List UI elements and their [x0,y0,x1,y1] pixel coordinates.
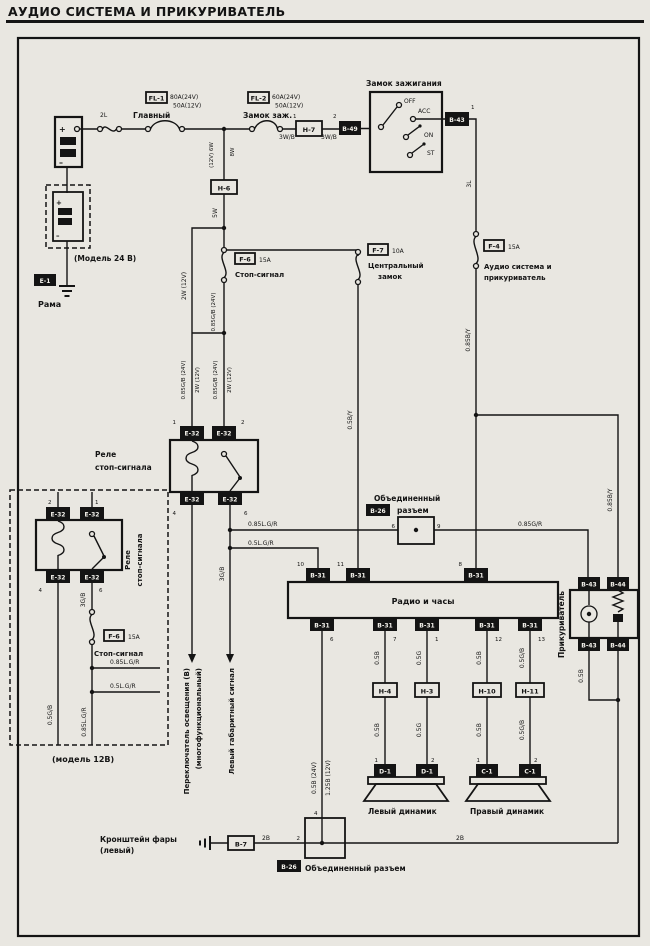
wire-05lgr: 0.5L.G/R [248,540,274,547]
fuse-f6: F-6 15A Стоп-сигнал 2W (12V) 0.85G/B (24… [181,248,284,400]
wire-085by: 0.85B/Y [465,328,472,351]
wire-3l: 3L [466,180,473,188]
svg-text:6: 6 [244,511,248,517]
f4-name-1: Аудио система и [484,263,552,271]
main-link-label: Главный [133,111,170,120]
svg-text:6: 6 [392,524,396,530]
wire-05by: 0.5B/Y [347,410,354,430]
frame-label: Рама [38,300,61,309]
svg-text:F-4: F-4 [488,243,500,251]
svg-text:0.5B: 0.5B [476,651,483,665]
wire-8w: 8W [230,147,236,156]
joint-connector-mid: Объединенный разъем B-26 6 9 [366,494,441,544]
svg-text:0.85G/B (24V): 0.85G/B (24V) [213,361,219,400]
battery-minus: – [59,158,63,167]
svg-text:1: 1 [95,500,99,506]
wire-05lgr-12v: 0.5L.G/R [110,683,136,690]
svg-text:0.5G: 0.5G [416,723,423,738]
svg-text:2B: 2B [456,835,464,842]
wire-12v6w: (12V) 6W [209,142,215,168]
svg-text:B-31: B-31 [479,623,494,630]
schematic-canvas: АУДИО СИСТЕМА И ПРИКУРИВАТЕЛЬ + [0,0,650,946]
svg-text:FL-2: FL-2 [251,95,267,103]
svg-text:11: 11 [337,562,344,568]
svg-text:H-7: H-7 [303,126,316,134]
h-connectors: H-4 H-3 H-10 H-11 [373,683,544,697]
speaker-right: 1 2 C-1 C-1 Правый динамик [466,758,550,816]
wire-3wb-1: 3W/B [279,134,295,141]
f7-name-2: замок [378,273,402,281]
svg-text:4: 4 [173,511,177,517]
svg-text:2: 2 [241,420,245,426]
svg-text:B-26: B-26 [281,864,296,871]
dest-light-switch-1: Переключатель освещения (В) [183,668,191,794]
f6-name: Стоп-сигнал [235,271,284,279]
svg-text:1: 1 [293,114,297,120]
svg-text:0.5B: 0.5B [476,723,483,737]
svg-text:0.5B: 0.5B [374,723,381,737]
model-24v-label: (Модель 24 В) [74,254,136,263]
svg-text:0.5G/B: 0.5G/B [519,648,526,668]
svg-text:B-31: B-31 [522,623,537,630]
svg-text:10A: 10A [392,248,405,255]
wire-2l-label: 2L [100,112,108,119]
svg-text:E-32: E-32 [51,512,66,519]
svg-text:15A: 15A [259,257,272,264]
svg-text:0.5G/B: 0.5G/B [519,720,526,740]
svg-text:B-49: B-49 [342,126,357,133]
radio-unit: 10 11 8 B-31 B-31 B-31 Радио и часы B-31… [288,562,558,796]
svg-text:B-44: B-44 [610,643,625,650]
wire-085gr: 0.85G/R [518,521,542,528]
svg-text:H-11: H-11 [521,688,539,696]
svg-text:0.85G/B (24V): 0.85G/B (24V) [181,361,187,400]
svg-text:B-31: B-31 [377,623,392,630]
svg-text:1: 1 [477,758,481,764]
f4-name-2: прикуриватель [484,274,546,282]
battery-plus: + [59,125,66,134]
svg-text:B-43: B-43 [449,117,464,124]
svg-text:1: 1 [471,105,475,111]
svg-text:2W (12V): 2W (12V) [195,367,201,393]
svg-text:13: 13 [538,637,545,643]
wire-3wb-2: 3W/B [321,134,337,141]
svg-text:D-1: D-1 [379,769,391,776]
svg-text:Объединенный: Объединенный [374,494,440,503]
fl1-rating-12: 50A(12V) [173,103,201,110]
ign-link-label: Замок заж. [243,111,292,120]
svg-text:B-44: B-44 [610,582,625,589]
battery-24v: + – + – (Модель 24 В) E-1 Рама [34,117,136,309]
svg-text:E-32: E-32 [85,575,100,582]
pos-acc: ACC [418,108,430,115]
wire-085gb24: 0.85G/B (24V) [211,293,217,332]
wire-2w12v: 2W (12V) [181,272,188,300]
svg-text:–: – [56,232,60,240]
wire-085lgr-12v: 0.85L.G/R [110,659,139,666]
lighter-heater-icon [613,590,623,612]
svg-text:Реле: Реле [124,550,132,570]
svg-text:H-10: H-10 [478,688,496,696]
svg-text:стоп-сигнала: стоп-сигнала [136,533,144,586]
model-12v-box [10,490,168,745]
arrow-to-light-switch [188,654,196,663]
radio-name: Радио и часы [392,597,455,606]
wire-125b12: 1.25B (12V) [325,760,332,796]
svg-text:2: 2 [534,758,538,764]
cigarette-lighter: B-43 B-44 B-43 B-44 Прикуриватель 0.5B [557,577,638,683]
svg-text:H-3: H-3 [421,688,434,696]
svg-text:1: 1 [375,758,379,764]
svg-text:FL-1: FL-1 [149,95,165,103]
svg-text:B-31: B-31 [350,573,365,580]
wiring-diagram-page: АУДИО СИСТЕМА И ПРИКУРИВАТЕЛЬ + [0,0,650,946]
svg-text:2W (12V): 2W (12V) [227,367,233,393]
f6-name-12v: Стоп-сигнал [94,650,143,658]
svg-text:15A: 15A [508,244,521,251]
svg-text:(левый): (левый) [100,846,134,855]
wire-085lgr: 0.85L.G/R [248,521,277,528]
lighter-label: Прикуриватель [557,591,566,658]
svg-text:E-32: E-32 [217,431,232,438]
svg-text:2B: 2B [262,835,270,842]
fl2-rating-24: 60A(24V) [272,94,300,101]
svg-text:B-31: B-31 [314,623,329,630]
svg-text:разъем: разъем [397,506,429,515]
stop-relay-24v: Реле стоп-сигнала 1 2 E-32 E-32 E-32 E-3… [95,420,542,794]
svg-text:H-6: H-6 [218,185,231,193]
svg-text:B-31: B-31 [310,573,325,580]
svg-text:H-4: H-4 [379,688,392,696]
page-title: АУДИО СИСТЕМА И ПРИКУРИВАТЕЛЬ [8,4,285,19]
svg-text:2: 2 [297,836,301,842]
wire-5w: 5W [212,208,219,218]
svg-text:E-32: E-32 [185,431,200,438]
fl2-rating-12: 50A(12V) [275,103,303,110]
speaker-right-label: Правый динамик [470,807,544,816]
svg-text:6: 6 [99,588,103,594]
pos-st: ST [427,150,435,157]
svg-text:стоп-сигнала: стоп-сигнала [95,463,152,472]
svg-text:D-1: D-1 [421,769,433,776]
wires [58,119,618,843]
f7-name-1: Центральный [368,262,424,270]
svg-text:1: 1 [435,637,439,643]
speaker-cone-left [364,784,448,801]
pos-on: ON [424,132,433,139]
arrow-to-marker-signal [226,654,234,663]
wire-3gb: 3G/B [219,567,226,582]
speaker-cone-right [466,784,550,801]
svg-text:4: 4 [39,588,43,594]
title-underline [6,20,644,23]
svg-text:2: 2 [333,114,337,120]
svg-text:E-32: E-32 [185,497,200,504]
svg-text:2: 2 [48,500,52,506]
svg-text:B-31: B-31 [419,623,434,630]
svg-text:7: 7 [393,637,397,643]
svg-text:C-1: C-1 [481,769,492,776]
svg-text:B-43: B-43 [581,643,596,650]
svg-text:9: 9 [437,524,441,530]
svg-text:F-7: F-7 [372,247,383,255]
svg-text:10: 10 [297,562,304,568]
speaker-left: 1 2 D-1 D-1 Левый динамик [364,758,448,816]
svg-text:E-32: E-32 [223,497,238,504]
wire-05b-lighter: 0.5B [578,669,585,683]
svg-text:E-32: E-32 [51,575,66,582]
speaker-left-label: Левый динамик [368,807,437,816]
wire-05gb-12v: 0.5G/B [47,705,54,725]
dest-marker-signal: Левый габаритный сигнал [228,668,236,775]
svg-text:B-43: B-43 [581,582,596,589]
svg-text:F-6: F-6 [108,633,120,641]
svg-text:E-1: E-1 [40,278,51,285]
ignition-switch: Замок зажигания OFF ACC ON ST B-43 1 3L [366,79,475,188]
wire-085by-2: 0.85B/Y [607,488,614,511]
dest-light-switch-2: (многофункциональный) [195,668,203,769]
model-12v-label: (модель 12В) [52,755,114,764]
wire-085lgr-down-12v: 0.85L.G/R [81,707,88,736]
svg-text:Реле: Реле [95,450,116,459]
svg-text:B-7: B-7 [235,841,247,849]
fl1-rating-24: 80A(24V) [170,94,198,101]
power-feed: 2L Главный FL-1 80A(24V) 50A(12V) FL-2 6… [98,92,362,218]
ground-symbol-frame [59,286,75,296]
svg-text:B-26: B-26 [370,508,385,515]
fuse-f4: F-4 15A Аудио система и прикуриватель 0.… [465,232,614,512]
svg-text:6: 6 [330,637,334,643]
svg-text:15A: 15A [128,634,141,641]
svg-text:E-32: E-32 [85,512,100,519]
ground-line: Кронштейн фары (левый) B-7 2B 2B 4 2 B-2… [100,811,464,873]
wire-05b24: 0.5B (24V) [311,762,318,794]
svg-text:2: 2 [431,758,435,764]
svg-text:Кронштейн фары: Кронштейн фары [100,835,177,844]
joint-connector-bottom-box [305,818,345,858]
svg-text:F-6: F-6 [239,256,251,264]
svg-text:12: 12 [495,637,502,643]
svg-text:+: + [56,199,62,207]
stop-relay-12v-dashed: 2 1 E-32 E-32 E-32 E-32 4 6 Реле стоп-си… [10,490,168,764]
wire-3gb-12v: 3G/B [80,593,87,608]
ground-symbol-bracket [200,836,210,850]
pos-off: OFF [404,98,416,105]
joint-bottom-label: Объединенный разъем [305,864,406,873]
svg-text:1: 1 [173,420,177,426]
ignition-title: Замок зажигания [366,79,442,88]
svg-text:4: 4 [314,811,318,817]
svg-text:0.5G: 0.5G [416,651,423,666]
svg-text:C-1: C-1 [524,769,535,776]
svg-text:8: 8 [459,562,463,568]
svg-text:B-31: B-31 [468,573,483,580]
svg-text:0.5B: 0.5B [374,651,381,665]
